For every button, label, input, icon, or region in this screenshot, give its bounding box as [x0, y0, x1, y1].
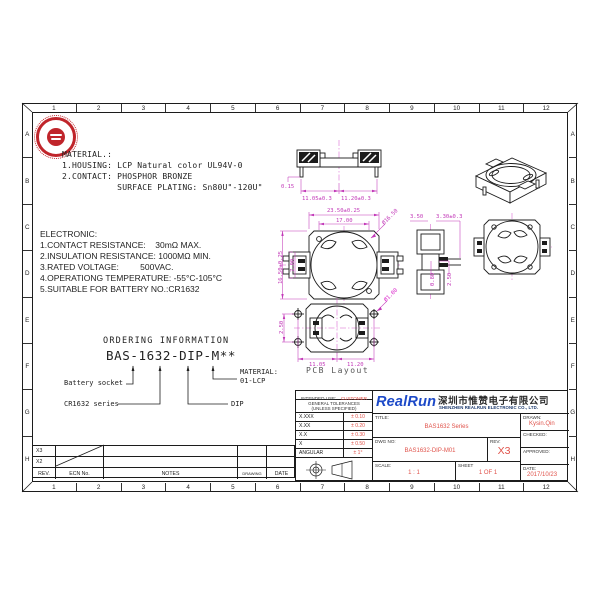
tolerance-value: ± 1°: [344, 449, 372, 457]
callout-dip: DIP: [231, 400, 244, 408]
revision-table: X3 X2 REV. ECN No. NOTES DRAWING DATE: [32, 445, 295, 478]
general-tolerances-box: GENERAL TOLERANCES (UNLESS SPECIFIED): [296, 400, 373, 413]
electronic-note-line: 3.RATED VOLTAGE: 500VAC.: [40, 262, 174, 272]
tolerance-row: X.X ± 0.30: [296, 431, 373, 440]
material-section-title: MATERIAL.:: [62, 150, 112, 159]
revision-col-notes: NOTES: [104, 468, 238, 479]
title-label: TITLE:: [375, 415, 520, 420]
material-note-line: 2.CONTACT: PHOSPHOR BRONZE: [62, 172, 192, 181]
revision-col-ecn: ECN No.: [56, 468, 104, 479]
date-value: 2017/10/23: [527, 472, 569, 478]
dim-top-diameter: Ø16.50: [380, 207, 399, 226]
checked-box: CHECKED:: [521, 431, 569, 448]
revision-cell: [267, 457, 296, 468]
approved-box: APPROVED:: [521, 448, 569, 465]
dim-front-left: 11.05±0.3: [302, 196, 332, 202]
title-block: INTENDED USE: CUSTOMER GENERAL TOLERANCE…: [295, 390, 568, 481]
electronic-note-line: 1.CONTACT RESISTANCE: 30mΩ MAX.: [40, 240, 201, 250]
dim-top-inner-height: 7.00: [290, 259, 296, 272]
tolerance-row: ANGULAR ± 1°: [296, 449, 373, 458]
drawing-title-box: TITLE: BAS1632 Series: [373, 414, 521, 438]
sheet-label: SHEET: [458, 463, 520, 468]
dim-front-thickness: 0.15: [281, 184, 294, 190]
drawing-title-value: BAS1632 Series: [373, 424, 520, 430]
tolerance-row: X.XX ± 0.20: [296, 422, 373, 431]
revision-cell: [267, 446, 296, 457]
revision-cell: [56, 457, 104, 468]
dwg-no-label: DWG NO:: [375, 439, 487, 444]
tolerance-label: X.XXX: [296, 413, 344, 421]
callout-material-value: 01-LCP: [240, 377, 265, 385]
date-box: DATE: 2017/10/23: [521, 465, 569, 482]
tolerance-label: ANGULAR: [296, 449, 344, 457]
revision-col-drawing: DRAWING: [238, 468, 267, 479]
checked-label: CHECKED:: [523, 432, 569, 437]
tolerance-label: X: [296, 440, 344, 448]
electronic-note-line: 5.SUITABLE FOR BATTERY NO.:CR1632: [40, 284, 200, 294]
tolerance-value: ± 0.20: [344, 422, 372, 430]
side-view-drawing: 3.50 3.30±0.3 0.80 2.50: [398, 204, 475, 302]
revision-row-rev: X2: [33, 457, 56, 468]
revision-cell: [238, 457, 267, 468]
scale-box: SCALE: 1 : 1: [373, 462, 456, 482]
tolerance-row: X ± 0.50: [296, 440, 373, 449]
top-view-drawing: 23.50±0.25 17.00 Ø16.50 16.50±0.25 7.00: [276, 204, 403, 306]
tolerance-value: ± 0.30: [344, 431, 372, 439]
scale-value: 1 : 1: [373, 470, 455, 476]
dim-pcb-pitch: 2.50: [279, 321, 285, 334]
revision-value: X3: [488, 445, 520, 457]
electronic-section-title: ELECTRONIC:: [40, 229, 97, 239]
stamp-center-disc: [47, 128, 65, 146]
scale-label: SCALE:: [375, 463, 455, 468]
tolerance-label: X.XX: [296, 422, 344, 430]
drawn-label: DRAWN:: [523, 415, 569, 420]
revision-col-rev: REV.: [33, 468, 56, 479]
electronic-note-line: 4.OPERATIONG TEMPERATURE: -55°C-105°C: [40, 273, 222, 283]
dim-side-d: 2.50: [447, 273, 453, 286]
material-note-line: SURFACE PLATING: Sn80U"-120U": [62, 183, 263, 192]
material-note-line: 1.HOUSING: LCP Natural color UL94V-0: [62, 161, 243, 170]
callout-cr1632-series: CR1632 series: [64, 400, 119, 408]
drawn-value: Kysin.Qin: [529, 421, 569, 427]
projection-symbol-box: [296, 458, 373, 482]
engineering-drawing-sheet: 1 2 3 4 5 6 7 8 9 10 11 12 1 2 3 4 5 6 7…: [0, 0, 600, 600]
realrun-brand-logo: RealRun: [376, 394, 436, 410]
tolerances-subtitle: (UNLESS SPECIFIED): [296, 406, 372, 411]
isometric-view-drawing: [456, 140, 556, 214]
intended-use-box: INTENDED USE: CUSTOMER: [296, 391, 373, 400]
drawing-number-value: BAS1632-DIP-M01: [373, 448, 487, 454]
approved-label: APPROVED:: [523, 449, 569, 454]
stamp-mark: [50, 134, 62, 136]
projection-symbol-icon: [296, 458, 373, 482]
dim-front-right: 11.20±0.3: [341, 196, 371, 202]
dim-top-height: 16.50±0.25: [278, 251, 284, 284]
callout-battery-socket: Battery socket: [64, 379, 123, 387]
company-header-band: RealRun 深圳市惟赞电子有限公司 SHENZHEN REALRUN ELE…: [373, 391, 569, 414]
drawn-box: DRAWN: Kysin.Qin: [521, 414, 569, 431]
tolerance-label: X.X: [296, 431, 344, 439]
sheet-value: 1 OF 1: [456, 470, 520, 476]
revision-row-rev: X3: [33, 446, 56, 457]
dim-top-width: 23.50±0.25: [327, 208, 360, 214]
bottom-view-drawing: [472, 208, 554, 290]
stamp-mark: [51, 138, 61, 140]
electronic-note-line: 2.INSULATION RESISTANCE: 1000MΩ MIN.: [40, 251, 211, 261]
revision-box: REV: X3: [488, 438, 521, 462]
tolerance-value: ± 0.50: [344, 440, 372, 448]
dim-top-inner-width: 17.00: [336, 218, 353, 224]
revision-col-date: DATE: [267, 468, 296, 479]
drawing-number-box: DWG NO: BAS1632-DIP-M01: [373, 438, 488, 462]
revision-cell: [56, 446, 104, 457]
rev-label: REV:: [490, 439, 520, 444]
revision-cell: [104, 457, 238, 468]
revision-cell: [238, 446, 267, 457]
pcb-layout-caption: PCB Layout: [306, 366, 369, 375]
company-name-english: SHENZHEN REALRUN ELECTRONIC CO., LTD.: [439, 405, 538, 410]
dim-side-c: 0.80: [430, 273, 436, 286]
revision-cell: [104, 446, 238, 457]
dim-side-b: 3.30±0.3: [436, 214, 463, 220]
tolerance-value: ± 0.10: [344, 413, 372, 421]
pcb-layout-drawing: 2.50 11.05 11.20 Ø1.00: [270, 296, 400, 368]
date-label: DATE:: [523, 466, 569, 471]
callout-material-label: MATERIAL:: [240, 368, 278, 376]
tolerance-row: X.XXX ± 0.10: [296, 413, 373, 422]
front-view-drawing: 0.15 11.05±0.3 11.20±0.3: [280, 137, 398, 207]
dim-side-a: 3.50: [410, 214, 423, 220]
sheet-box: SHEET 1 OF 1: [456, 462, 521, 482]
